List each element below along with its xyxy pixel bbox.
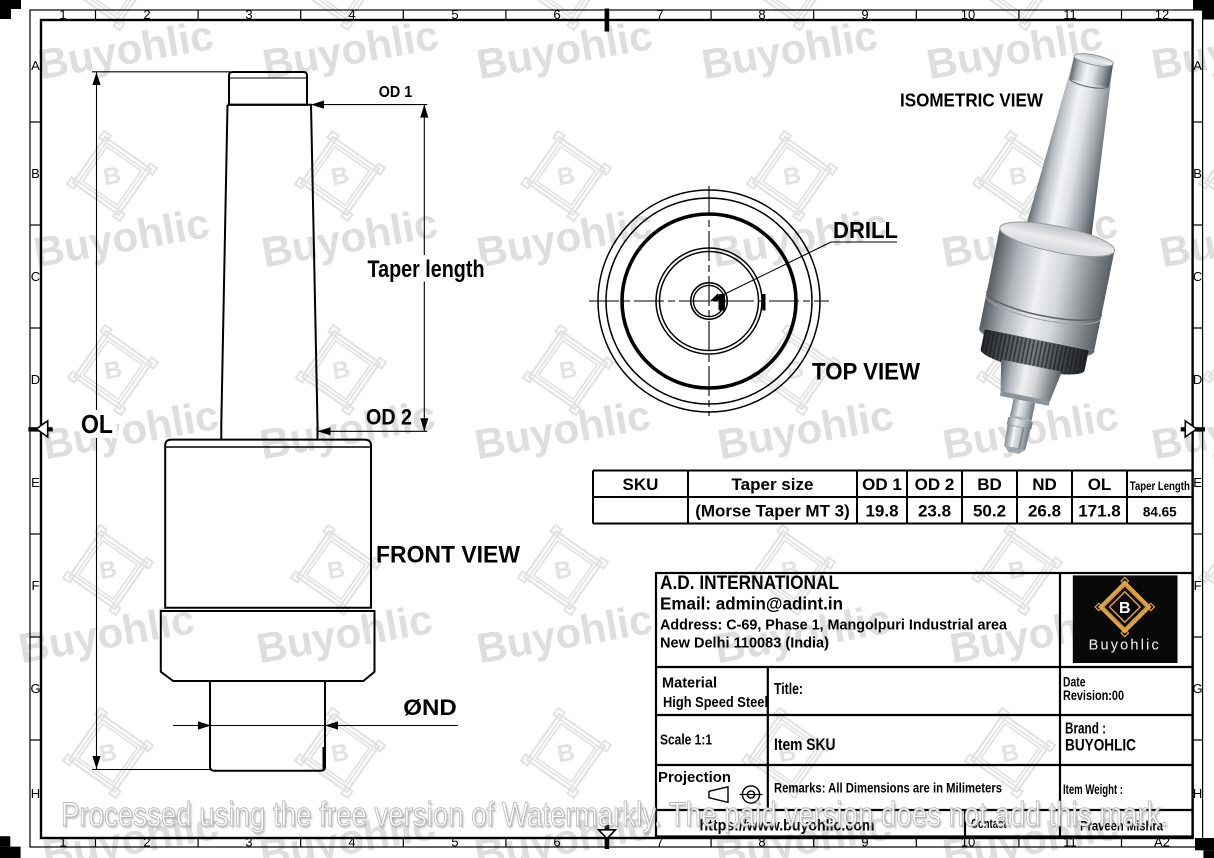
svg-text:12: 12 (1155, 7, 1169, 22)
svg-text:Buyohlic: Buyohlic (1148, 11, 1214, 88)
svg-text:G: G (1193, 681, 1203, 696)
svg-text:1: 1 (59, 7, 66, 22)
svg-text:TOP VIEW: TOP VIEW (812, 359, 920, 386)
svg-text:26.8: 26.8 (1028, 502, 1061, 521)
svg-text:3: 3 (245, 7, 252, 22)
svg-text:OD 2: OD 2 (915, 475, 955, 494)
svg-text:Item Weight :: Item Weight : (1063, 781, 1123, 797)
svg-text:ØND: ØND (403, 695, 457, 720)
svg-text:Projection: Projection (658, 770, 731, 786)
svg-text:OD 1: OD 1 (379, 84, 413, 101)
svg-text:4: 4 (348, 7, 355, 22)
svg-text:6: 6 (553, 835, 560, 850)
svg-text:ND: ND (1032, 475, 1057, 494)
svg-text:Buyohlic: Buyohlic (471, 391, 654, 468)
svg-text:Buyohlic: Buyohlic (1156, 199, 1214, 276)
svg-text:A: A (31, 58, 40, 73)
svg-text:Title:: Title: (774, 681, 803, 698)
svg-text:A: A (1193, 58, 1202, 73)
svg-text:BD: BD (977, 475, 1002, 494)
svg-text:B: B (325, 556, 347, 586)
svg-text:Taper size: Taper size (732, 475, 814, 494)
svg-text:B: B (999, 739, 1021, 769)
svg-text:6: 6 (553, 7, 560, 22)
svg-text:B: B (1006, 556, 1028, 586)
svg-text:D: D (1193, 372, 1202, 387)
svg-text:B: B (329, 162, 351, 192)
svg-text:Material: Material (662, 676, 717, 692)
svg-text:B: B (781, 162, 803, 192)
svg-text:Item SKU: Item SKU (774, 735, 836, 754)
svg-text:2: 2 (143, 835, 150, 850)
svg-text:B: B (97, 739, 119, 769)
svg-text:High Speed Steel: High Speed Steel (663, 695, 768, 711)
svg-text:ISOMETRIC VIEW: ISOMETRIC VIEW (900, 91, 1043, 111)
svg-text:OD 1: OD 1 (862, 475, 902, 494)
svg-text:171.8: 171.8 (1078, 502, 1121, 521)
svg-text:9: 9 (861, 7, 868, 22)
svg-text:D: D (31, 372, 40, 387)
svg-text:Buyohlic: Buyohlic (39, 391, 222, 468)
svg-text:B: B (97, 556, 119, 586)
svg-text:E: E (1193, 475, 1202, 490)
svg-text:Buyohlic: Buyohlic (698, 11, 881, 88)
svg-text:B: B (101, 162, 123, 192)
svg-text:BUYOHLIC: BUYOHLIC (1065, 737, 1136, 755)
svg-text:B: B (329, 739, 351, 769)
svg-text:4: 4 (348, 835, 355, 850)
svg-text:FRONT VIEW: FRONT VIEW (376, 542, 520, 569)
svg-text:OL: OL (1088, 475, 1112, 494)
svg-text:H: H (1193, 786, 1202, 801)
svg-text:Taper length: Taper length (368, 256, 485, 283)
svg-text:B: B (1007, 162, 1029, 192)
svg-text:Email: admin@adint.in: Email: admin@adint.in (660, 594, 843, 614)
svg-text:Buyohlic: Buyohlic (473, 11, 656, 88)
svg-text:C: C (31, 269, 40, 284)
svg-text:F: F (1194, 578, 1202, 593)
svg-text:8: 8 (758, 7, 765, 22)
svg-text:50.2: 50.2 (973, 502, 1006, 521)
svg-text:Address: C-69, Phase 1, Mangol: Address: C-69, Phase 1, Mangolpuri Indus… (660, 617, 1008, 634)
svg-text:(Morse Taper MT 3): (Morse Taper MT 3) (695, 502, 850, 521)
svg-text:A.D. INTERNATIONAL: A.D. INTERNATIONAL (660, 573, 839, 594)
svg-text:B: B (555, 162, 577, 192)
svg-text:B: B (330, 356, 352, 386)
svg-text:B: B (552, 556, 574, 586)
svg-text:C: C (1193, 269, 1202, 284)
svg-text:H: H (31, 786, 40, 801)
svg-text:B: B (31, 166, 40, 181)
svg-text:Buyohlic: Buyohlic (15, 595, 198, 672)
svg-text:OD 2: OD 2 (366, 405, 412, 430)
svg-text:19.8: 19.8 (865, 502, 898, 521)
svg-text:B: B (555, 739, 577, 769)
svg-text:Buyohlic: Buyohlic (34, 11, 217, 88)
svg-text:DRILL: DRILL (833, 217, 898, 243)
svg-text:84.65: 84.65 (1143, 505, 1177, 520)
svg-text:3: 3 (245, 835, 252, 850)
svg-text:Brand :: Brand : (1065, 721, 1106, 738)
svg-text:E: E (31, 475, 40, 490)
svg-text:SKU: SKU (623, 475, 659, 494)
svg-text:10: 10 (961, 7, 975, 22)
svg-text:5: 5 (451, 7, 458, 22)
svg-text:Buyohlic: Buyohlic (473, 595, 656, 672)
svg-text:11: 11 (1063, 7, 1077, 22)
svg-text:F: F (32, 578, 40, 593)
svg-text:New Delhi 110083 (India): New Delhi 110083 (India) (660, 635, 829, 652)
svg-text:23.8: 23.8 (918, 502, 951, 521)
svg-text:B: B (1193, 166, 1202, 181)
svg-text:B: B (1119, 600, 1131, 617)
svg-text:Revision:00: Revision:00 (1063, 688, 1124, 703)
svg-text:5: 5 (451, 835, 458, 850)
svg-text:OL: OL (81, 411, 113, 439)
svg-text:G: G (30, 681, 40, 696)
svg-text:B: B (557, 356, 579, 386)
svg-text:Scale 1:1: Scale 1:1 (660, 733, 712, 749)
svg-text:Remarks: All Dimensions are in: Remarks: All Dimensions are in Milimeter… (774, 781, 1002, 796)
svg-text:2: 2 (143, 7, 150, 22)
svg-text:7: 7 (656, 7, 663, 22)
svg-text:1: 1 (59, 835, 66, 850)
svg-text:Buyohlic: Buyohlic (1089, 638, 1161, 654)
svg-text:Taper Length: Taper Length (1130, 481, 1190, 493)
svg-text:B: B (102, 356, 124, 386)
